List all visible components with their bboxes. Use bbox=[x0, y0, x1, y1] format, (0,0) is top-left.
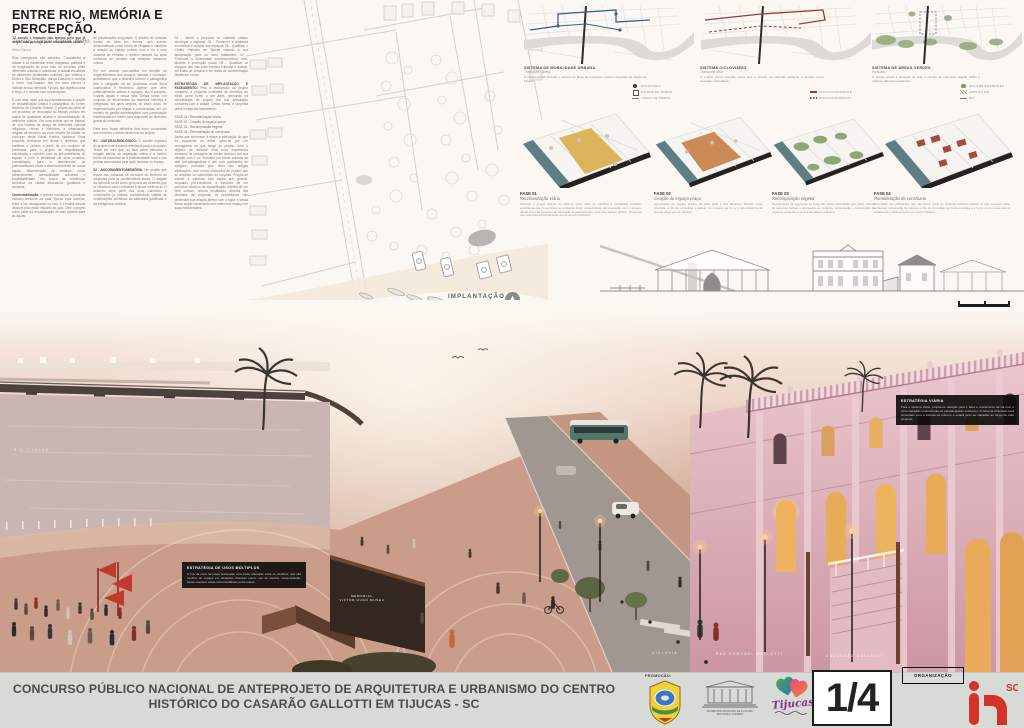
iab-sc-logo: SC bbox=[966, 679, 1018, 727]
fase-2-axon bbox=[654, 112, 772, 188]
secretaria-logo: SECRETARIA MUNICIPAL DE CULTURA, ESPORTE… bbox=[690, 679, 770, 727]
fase-name: Criação do espaço-praça bbox=[654, 196, 772, 201]
paragraph: ESTRATÉGIAS DE IMPLANTAÇÃO E FASEAMENTO:… bbox=[175, 82, 248, 111]
ciclovia-label: CICLOVIA bbox=[652, 651, 678, 655]
fase-1-axon bbox=[520, 112, 652, 188]
fase-panel-1: FASE 01 Reurbanização Viária Iniciando o… bbox=[520, 112, 652, 218]
rua-coronel-gallotti-label: RUA CORONEL GALLOTTI bbox=[716, 652, 783, 656]
fase-panel-4: FASE 04 Remodelação de constructo Demoli… bbox=[874, 112, 1022, 214]
main-render: RIO TIJUCAS CICLOVIA RUA CORONEL GALLOTT… bbox=[0, 300, 1024, 672]
secretaria-caption: SECRETARIA MUNICIPAL DE CULTURA, ESPORTE… bbox=[690, 710, 770, 717]
calcadao-gallotti-label: CALÇADÃO GALLOTTI bbox=[826, 654, 884, 658]
intro-columns: "O mundo é formado não apenas pelo que j… bbox=[12, 36, 248, 222]
paragraph: 04 - inserir a proposta no contexto urba… bbox=[175, 36, 248, 78]
paragraph: Em um cenário pan-caótico em direção ao … bbox=[93, 69, 166, 123]
diagram-cicloviario: SISTEMA CICLOVIÁRIO Transporte ativo O p… bbox=[700, 6, 872, 110]
memorial-label: MEMORIALVICTOR HUGO MUSEU bbox=[330, 594, 394, 603]
fase-list-item: FASE 03 - Recomposição vegetal bbox=[175, 125, 248, 129]
paragraph: É com esse mote que aqui apresentamos o … bbox=[12, 98, 85, 189]
organizacao-box: ORGANIZAÇÃO bbox=[902, 667, 964, 684]
diagram-subtitle: Transporte ativo bbox=[700, 70, 872, 74]
paragraph: Contextualização: é preciso considerar a… bbox=[12, 193, 85, 218]
diagram-caption: O projeto prevê conexão plena com o circ… bbox=[700, 76, 824, 84]
tijucas-coat-of-arms-logo bbox=[648, 680, 682, 725]
fase-name: Recomposição vegetal bbox=[772, 196, 884, 201]
footer-bar: CONCURSO PÚBLICO NACIONAL DE ANTEPROJETO… bbox=[0, 672, 1024, 728]
quote: "O mundo é formado não apenas pelo que j… bbox=[12, 36, 85, 44]
terminal-marker-icon bbox=[632, 84, 639, 88]
board-title: ENTRE RIO, MEMÓRIA E PERCEPÇÃO. bbox=[12, 8, 248, 36]
fase-panel-2: FASE 02 Criação do espaço-praça Apropria… bbox=[654, 112, 772, 214]
sheet-number-box: 1/4 bbox=[812, 670, 892, 726]
paragraph: 02 - ANCORAMENTO/MEMÓRIA: Um projeto que… bbox=[93, 168, 166, 205]
rio-marker-icon bbox=[960, 96, 967, 100]
render-scene bbox=[0, 300, 1024, 672]
green-areas-map bbox=[872, 6, 1022, 64]
paragraph: Rios navegáveis são caminho. Consideram … bbox=[12, 56, 85, 93]
secretaria-building-icon bbox=[690, 679, 770, 709]
callout-title: ESTRATÉGIA DE USOS MÚLTIPLOS bbox=[187, 566, 301, 570]
diagram-caption: O projeto prevê conexão e desvios de Rua… bbox=[524, 76, 646, 84]
fase-name: Reurbanização Viária bbox=[520, 196, 652, 201]
fase-list-item: FASE 04 - Remodelação do constructo bbox=[175, 130, 248, 134]
callout-body: Para o sistema viário, propõe-se redução… bbox=[901, 405, 1014, 421]
diagram-mobilidade: SISTEMA DE MOBILIDADE URBANA Transporte … bbox=[524, 6, 694, 110]
tijucas-city-logo: Tijucas bbox=[770, 676, 816, 728]
rio-tijucas-label: RIO TIJUCAS bbox=[14, 448, 49, 452]
intro-column-1: "O mundo é formado não apenas pelo que j… bbox=[12, 36, 85, 222]
macicos-marker-icon bbox=[960, 84, 967, 88]
fase-panel-3: FASE 03 Recomposição vegetal Recuperação… bbox=[772, 112, 884, 214]
diagram-legend: CICLOVIA EXISTENTE CICLOVIA PROPOSTA bbox=[810, 90, 872, 102]
paragraph: Para isso, foram definidos dois eixos co… bbox=[93, 127, 166, 135]
callout-title: ESTRATÉGIA VIÁRIA bbox=[901, 399, 1014, 403]
diagram-subtitle: Pontuado bbox=[872, 70, 1022, 74]
competition-title: CONCURSO PÚBLICO NACIONAL DE ANTEPROJETO… bbox=[8, 682, 620, 712]
fase-caption: Recuperação da vegetação ao longo das fa… bbox=[772, 203, 875, 214]
organizacao-label: ORGANIZAÇÃO bbox=[914, 673, 952, 678]
competition-board: ENTRE RIO, MEMÓRIA E PERCEPÇÃO. Tijucas,… bbox=[0, 0, 1024, 728]
fase-caption: Iniciando o projeto através do sistema v… bbox=[520, 203, 641, 218]
paragraph: 01 - NATURAL/BIOLÓGICO: O caráter orgâni… bbox=[93, 139, 166, 164]
fase-caption: Demolição das edificações que não fazem … bbox=[874, 203, 1010, 214]
cycling-map bbox=[700, 6, 872, 64]
sheet-number: 1/4 bbox=[826, 676, 879, 721]
bus-stop-marker-icon bbox=[632, 90, 639, 94]
intro-column-3: 04 - inserir a proposta no contexto urba… bbox=[175, 36, 248, 222]
diagram-areas-verdes: SISTEMA DE ÁREAS VERDES Pontuado O proje… bbox=[872, 6, 1022, 110]
quote-author: Milton Santos bbox=[12, 48, 85, 52]
elevation-drawing bbox=[600, 241, 1024, 319]
ciclovia-proposta-marker-icon bbox=[810, 96, 817, 100]
diagram-caption: O projeto prevê a proteção de todo o cir… bbox=[872, 76, 980, 84]
paragraph: Ainda que ocorresse à etapa a efetivação… bbox=[175, 135, 248, 210]
fase-caption: Apropriação do espaço público da APP atu… bbox=[654, 203, 763, 214]
diagram-legend: MACIÇOS EXISTENTES APPS DO RIO RIO bbox=[960, 84, 1022, 102]
fase-name: Remodelação de constructo bbox=[874, 196, 1022, 201]
intro-column-2: de privatizações irregulares. O desafio … bbox=[93, 36, 166, 222]
callout-estrategia-viaria: ESTRATÉGIA VIÁRIA Para o sistema viário,… bbox=[896, 395, 1019, 425]
mobility-map bbox=[524, 6, 694, 64]
fase-3-axon bbox=[772, 112, 884, 188]
ciclovia-existente-marker-icon bbox=[810, 90, 817, 94]
apps-marker-icon bbox=[960, 90, 967, 94]
fase-4-axon bbox=[874, 112, 1022, 188]
fase-list-item: FASE 01 - Reurbanização Viária bbox=[175, 115, 248, 119]
svg-text:SC: SC bbox=[1006, 683, 1018, 694]
diagram-subtitle: Transporte coletivo bbox=[524, 70, 694, 74]
diagram-legend: RODOVIÁRIA PONTOS DE ÔNIBUS LINHAS DE ÔN… bbox=[632, 84, 694, 102]
callout-usos-multiplos: ESTRATÉGIA DE USOS MÚLTIPLOS O mix de us… bbox=[182, 562, 306, 588]
promocao-label: PROMOÇÃO: bbox=[645, 674, 672, 678]
fase-list-item: FASE 02 - Criação do espaço-praça bbox=[175, 120, 248, 124]
scale-bar bbox=[958, 301, 1010, 307]
paragraph: de privatizações irregulares. O desafio … bbox=[93, 36, 166, 65]
callout-body: O mix de usos na praça pressupõe uma mai… bbox=[187, 572, 301, 584]
bus-line-marker-icon bbox=[632, 96, 639, 100]
